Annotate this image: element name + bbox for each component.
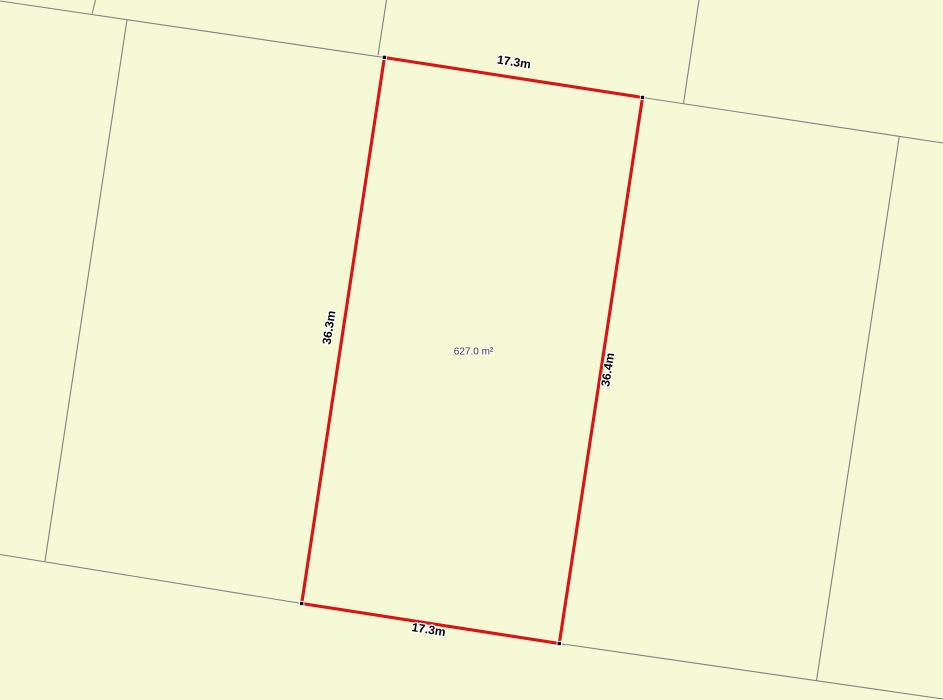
svg-text:627.0 m²: 627.0 m² [454,347,494,358]
